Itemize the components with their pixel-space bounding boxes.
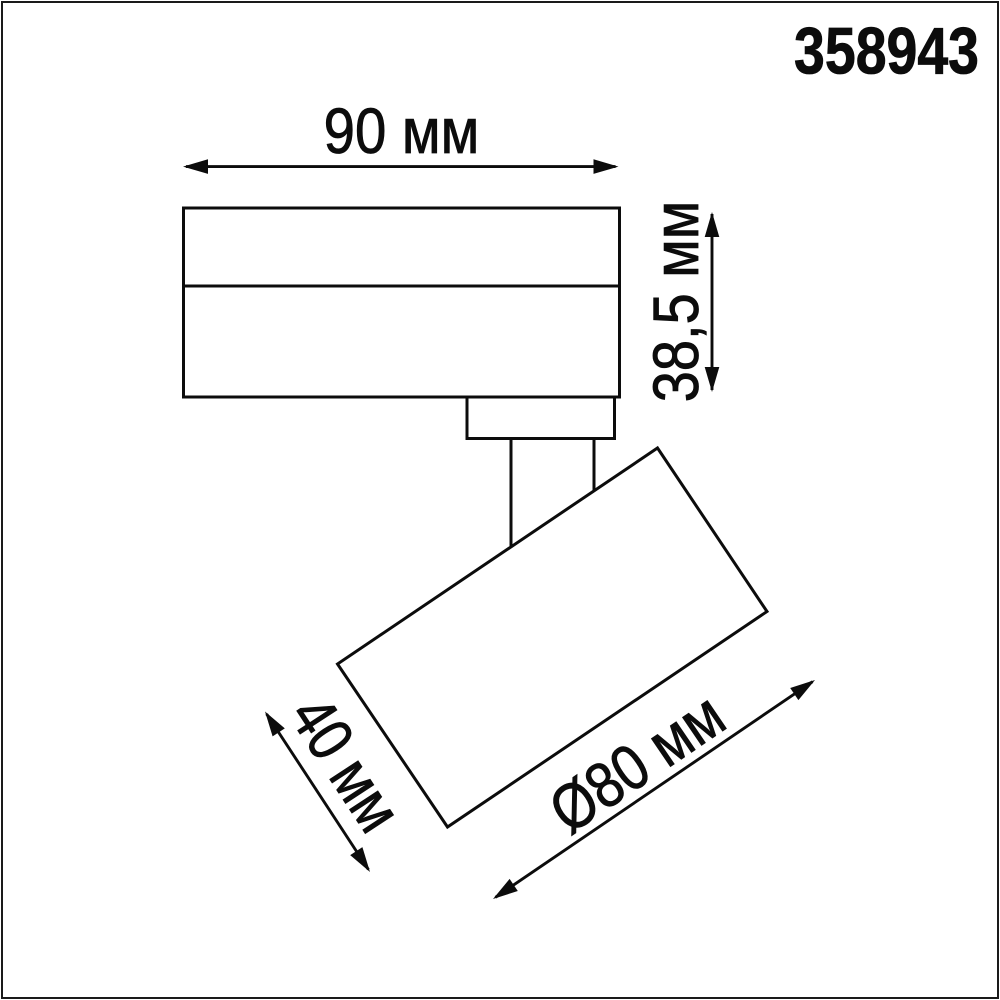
svg-text:358943: 358943 <box>794 14 979 88</box>
svg-text:38,5 мм: 38,5 мм <box>641 201 712 403</box>
svg-text:90 мм: 90 мм <box>324 95 480 167</box>
